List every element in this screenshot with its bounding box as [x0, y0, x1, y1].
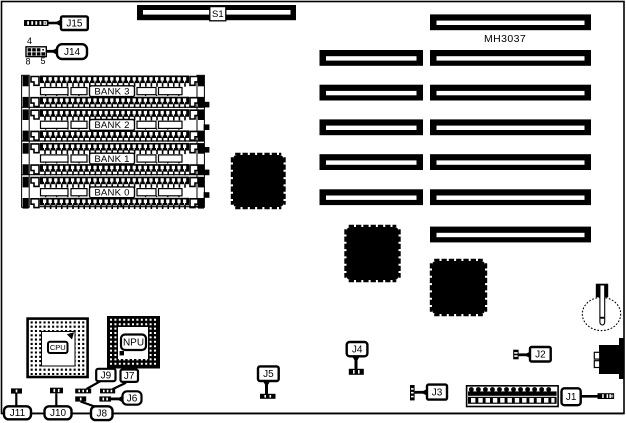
svg-text:8: 8 — [25, 57, 30, 67]
svg-text:J9: J9 — [101, 370, 112, 381]
svg-text:J4: J4 — [352, 345, 363, 356]
svg-text:J11: J11 — [10, 408, 26, 419]
svg-text:BANK 2: BANK 2 — [94, 120, 129, 131]
svg-text:J8: J8 — [97, 409, 108, 420]
svg-text:BANK 1: BANK 1 — [94, 154, 129, 165]
svg-text:BANK 3: BANK 3 — [94, 86, 129, 97]
svg-text:J7: J7 — [124, 371, 135, 382]
svg-text:CPU: CPU — [50, 343, 66, 352]
svg-text:J3: J3 — [432, 388, 443, 399]
svg-text:J5: J5 — [263, 369, 274, 380]
svg-text:J6: J6 — [127, 393, 138, 404]
svg-text:J14: J14 — [64, 47, 81, 58]
svg-text:J2: J2 — [535, 350, 546, 361]
svg-text:S1: S1 — [212, 9, 224, 20]
svg-text:5: 5 — [40, 56, 45, 66]
svg-text:J15: J15 — [66, 19, 83, 30]
svg-text:J10: J10 — [50, 408, 67, 419]
svg-text:J1: J1 — [566, 392, 577, 403]
svg-text:BANK 0: BANK 0 — [94, 188, 129, 199]
svg-text:NPU: NPU — [123, 338, 144, 349]
svg-text:4: 4 — [27, 36, 32, 46]
svg-text:MH3037: MH3037 — [484, 33, 526, 45]
